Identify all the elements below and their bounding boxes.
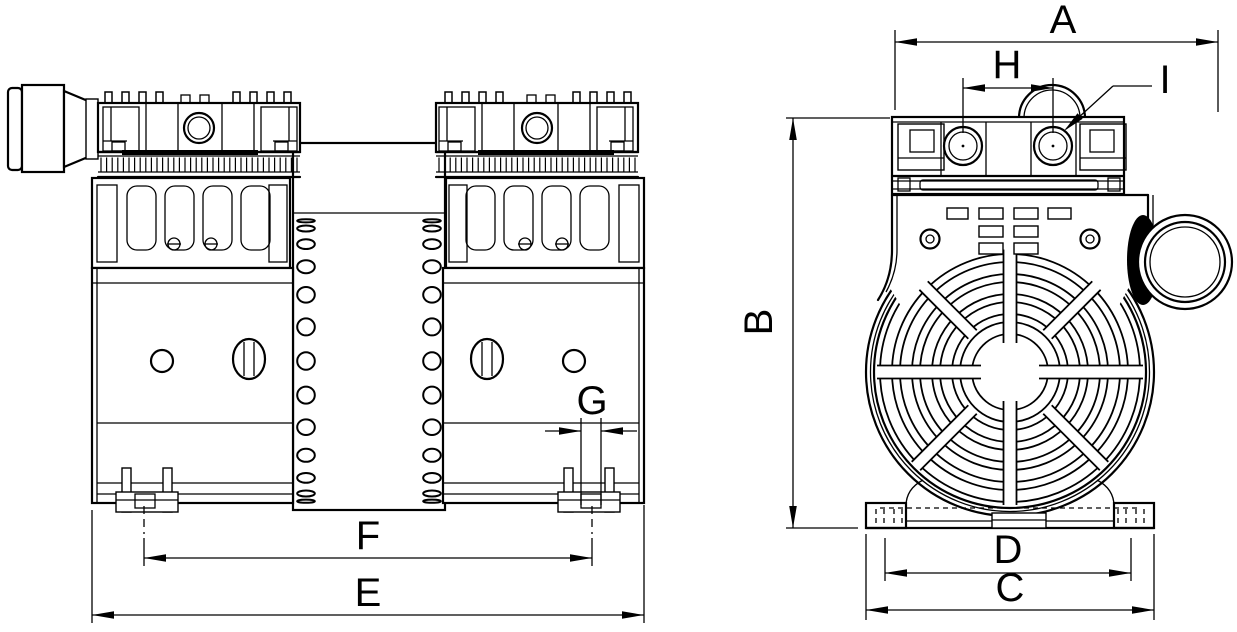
- louver: [979, 226, 1003, 237]
- louver: [947, 208, 968, 219]
- dim-label-C: C: [996, 566, 1025, 610]
- drawing-canvas: A H I B C D E F G: [0, 0, 1237, 632]
- base-foot-right: [1114, 503, 1154, 528]
- carry-handle: [1127, 215, 1232, 309]
- louver: [1014, 243, 1038, 254]
- connector-neck: [86, 99, 98, 159]
- pump-dimension-drawing: A H I B C D E F G: [0, 0, 1237, 632]
- cylinder-head-left: [92, 92, 300, 268]
- dim-label-H: H: [993, 43, 1022, 87]
- dim-label-D: D: [994, 528, 1023, 572]
- cylinder-head-right: [436, 92, 644, 268]
- louver: [1048, 208, 1071, 219]
- dim-label-A: A: [1050, 0, 1077, 42]
- foot-bracket: [116, 492, 178, 512]
- front-head-block: [892, 117, 1124, 194]
- louver: [979, 243, 1003, 254]
- dim-label-B: B: [737, 309, 781, 336]
- gasket-bar: [122, 150, 258, 155]
- handle-ring-outer: [1138, 215, 1232, 309]
- louver: [1014, 226, 1038, 237]
- connector-taper: [64, 91, 88, 167]
- louver: [1014, 208, 1038, 219]
- dim-label-E: E: [355, 571, 382, 615]
- side-view: [8, 85, 644, 534]
- cylinder-fin-block: [92, 178, 290, 268]
- connector-body: [22, 85, 64, 172]
- base-foot-left: [866, 503, 906, 528]
- face-screw: [921, 230, 940, 249]
- head-top-block: [98, 103, 300, 152]
- louver: [979, 208, 1003, 219]
- front-view: [866, 85, 1232, 528]
- power-connector: [8, 85, 98, 172]
- fin-hatch-ticks: [101, 158, 297, 172]
- connector-cap: [8, 88, 22, 170]
- dim-label-I: I: [1159, 58, 1170, 102]
- dim-label-F: F: [356, 514, 380, 558]
- front-head: [892, 85, 1126, 194]
- motor-housing-side: [293, 143, 445, 510]
- face-screw: [1081, 230, 1100, 249]
- dim-label-G: G: [576, 379, 607, 423]
- motor-housing-outline: [293, 143, 445, 510]
